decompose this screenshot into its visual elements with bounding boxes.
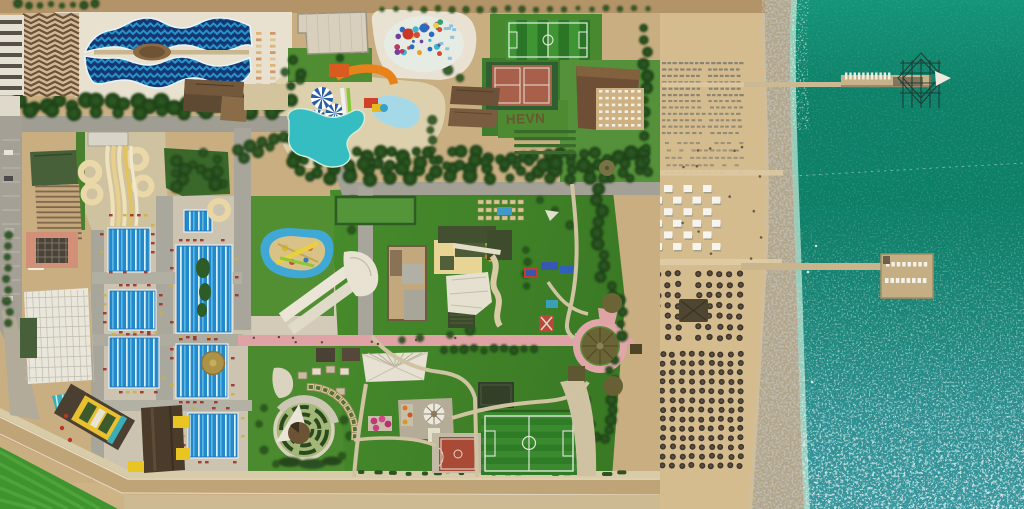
svg-text:HEVN: HEVN	[506, 111, 546, 127]
